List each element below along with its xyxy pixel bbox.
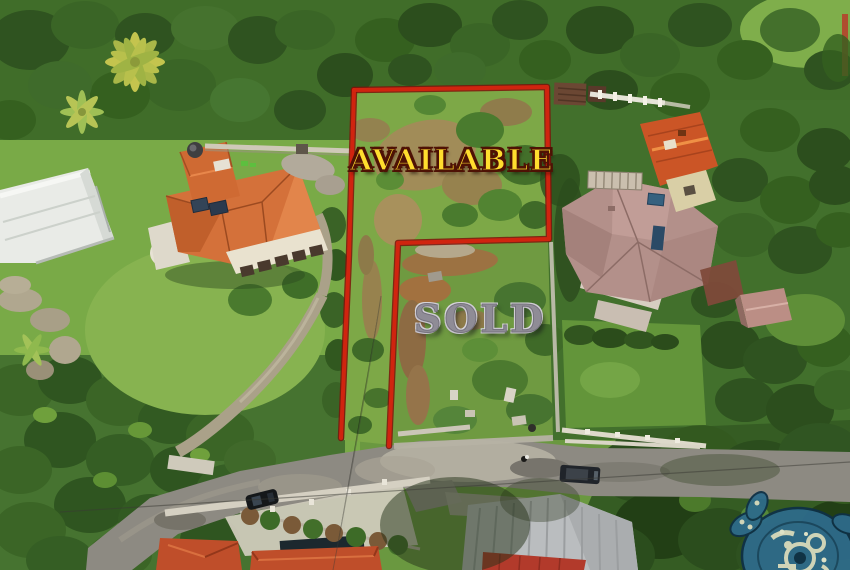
skylight: [651, 225, 665, 250]
aerial-photo: AVAILABLE SOLD: [0, 0, 850, 570]
pergola: [588, 171, 643, 190]
skylight: [647, 193, 664, 206]
red-roof-house: [156, 538, 242, 570]
solar-panel: [191, 197, 209, 212]
sold-lot-terrain: [392, 240, 565, 445]
dark-suv: [559, 465, 600, 485]
aerial-scene: [0, 0, 850, 570]
